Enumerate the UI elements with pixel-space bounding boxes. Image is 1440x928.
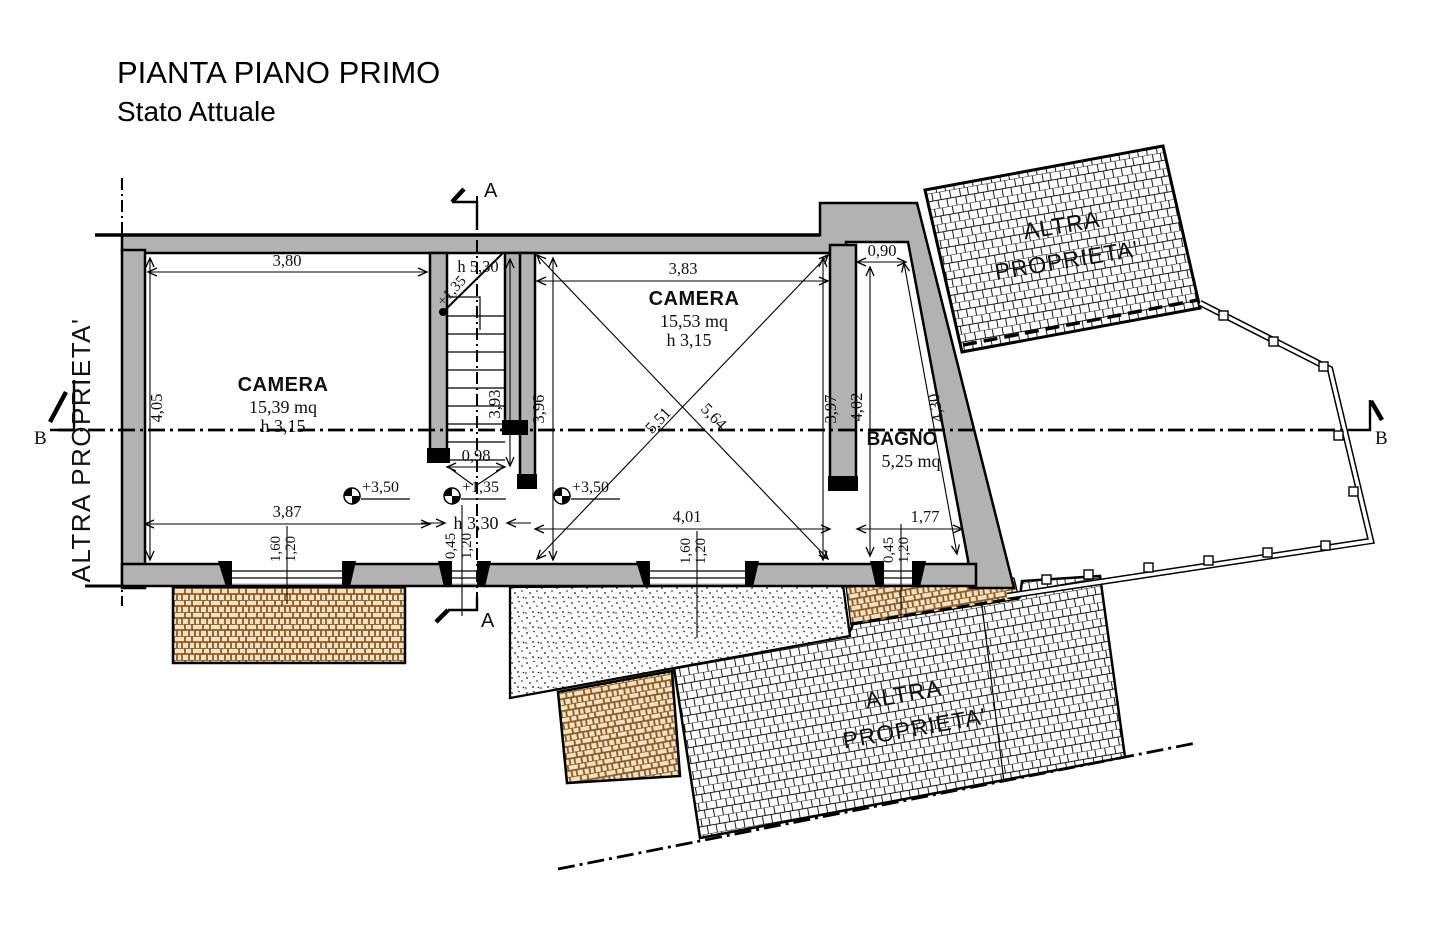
dim-stairs-window-w: 0,45 [443, 533, 459, 559]
dim-stairs-length: 3,93 [485, 390, 504, 419]
room-bagno-name: BAGNO [867, 429, 938, 450]
floor-plan-canvas: ALTRA PROPRIETA' ALTRA PROPRIETA' [0, 0, 1440, 928]
dim-camera2-bottom: 4,01 [673, 507, 702, 526]
dim-camera1-bottom: 3,87 [273, 502, 302, 521]
terrace-railing [1007, 303, 1371, 596]
dim-camera2-right: 3,97 [821, 395, 840, 424]
level-marker-camera1: +3,50 [344, 479, 410, 504]
dim-camera1-top: 3,80 [273, 251, 302, 270]
dim-bagno-left: 4,02 [847, 393, 866, 422]
dim-bagno-bottom: 1,77 [911, 507, 940, 526]
brick-balcony-left [173, 587, 405, 663]
section-label-a-top: A [484, 180, 498, 202]
dim-stairs-width: 0,98 [462, 446, 491, 465]
other-property-left-label: ALTRA PROPRIETA' [66, 318, 96, 583]
section-marker-b-right: B [1348, 400, 1388, 449]
window-stairs [438, 561, 491, 587]
title-line2: Stato Attuale [117, 96, 276, 127]
dim-camera1-left: 4,05 [147, 394, 166, 423]
level-markers: +3,50 +1,35 +3,50 [344, 479, 620, 504]
drawing-title: PIANTA PIANO PRIMO Stato Attuale [117, 55, 440, 127]
room-camera2-name: CAMERA [649, 288, 740, 310]
section-label-a-bottom: A [481, 610, 495, 632]
room-camera2-area: 15,53 mq [660, 311, 728, 331]
bottom-other-property-area: ALTRA PROPRIETA' [173, 576, 1196, 869]
dim-camera2-diag-a: 5,51 [641, 403, 675, 437]
dim-camera2-window-h: 1,20 [693, 538, 709, 564]
dim-camera2-window-w: 1,60 [678, 538, 694, 564]
dim-camera2-top: 3,83 [669, 259, 698, 278]
window-bagno [870, 561, 926, 587]
level-marker-landing: +1,35 [444, 479, 506, 504]
wall-left [122, 250, 145, 588]
room-camera1-name: CAMERA [238, 374, 329, 396]
room-camera2-height: h 3,15 [667, 330, 712, 350]
level-camera2: +3,50 [572, 479, 609, 496]
dim-bagno-top: 0,90 [868, 241, 897, 260]
section-label-b-left: B [34, 428, 47, 449]
dim-camera1-window-h: 1,20 [283, 536, 299, 562]
dim-bagno-window-h: 1,20 [896, 537, 912, 563]
level-camera1: +3,50 [362, 479, 399, 496]
dim-bagno-window-w: 0,45 [881, 537, 897, 563]
dim-camera2-left: 3,96 [529, 395, 548, 424]
wall-camera2-left [520, 253, 535, 476]
section-marker-a-top: A [452, 180, 498, 230]
title-line1: PIANTA PIANO PRIMO [117, 55, 440, 90]
room-camera-1: 3,80 4,05 CAMERA 15,39 mq h 3,15 3,87 1,… [145, 251, 430, 604]
dim-stairs-passage: h 3,30 [454, 513, 499, 533]
room-camera1-area: 15,39 mq [249, 397, 317, 417]
wall-stair-left [430, 253, 447, 450]
room-camera1-height: h 3,15 [261, 416, 306, 436]
railing-posts [1042, 311, 1358, 584]
room-bagno-area: 5,25 mq [881, 451, 940, 471]
dim-camera1-window-w: 1,60 [268, 536, 284, 562]
section-marker-a-bottom: A [436, 597, 495, 632]
stairs-headroom: h 5,30 [457, 257, 498, 276]
top-right-other-property-area: ALTRA PROPRIETA' [925, 146, 1200, 352]
brick-patch-bottom [558, 671, 680, 783]
level-landing: +1,35 [462, 479, 499, 496]
wall-bagno-left [830, 245, 856, 478]
section-label-b-right: B [1375, 428, 1388, 449]
dim-stairs-window-h: 1,20 [459, 533, 475, 559]
